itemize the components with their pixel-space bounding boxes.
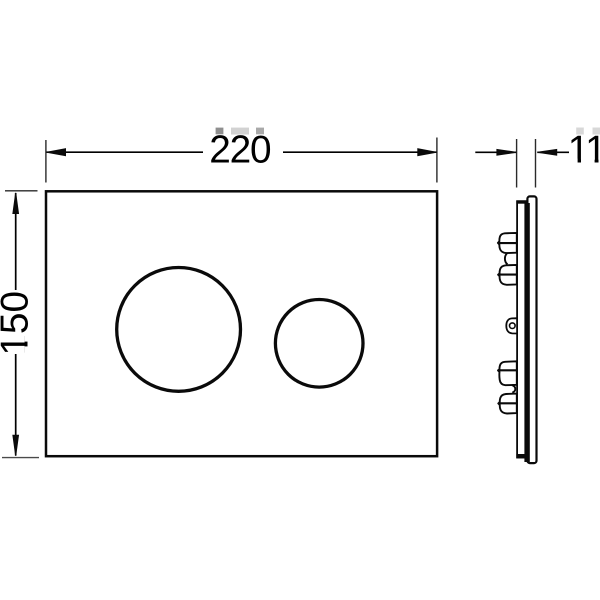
svg-text:220: 220	[209, 129, 271, 172]
svg-text:11: 11	[568, 128, 600, 171]
svg-text:150: 150	[0, 291, 37, 356]
